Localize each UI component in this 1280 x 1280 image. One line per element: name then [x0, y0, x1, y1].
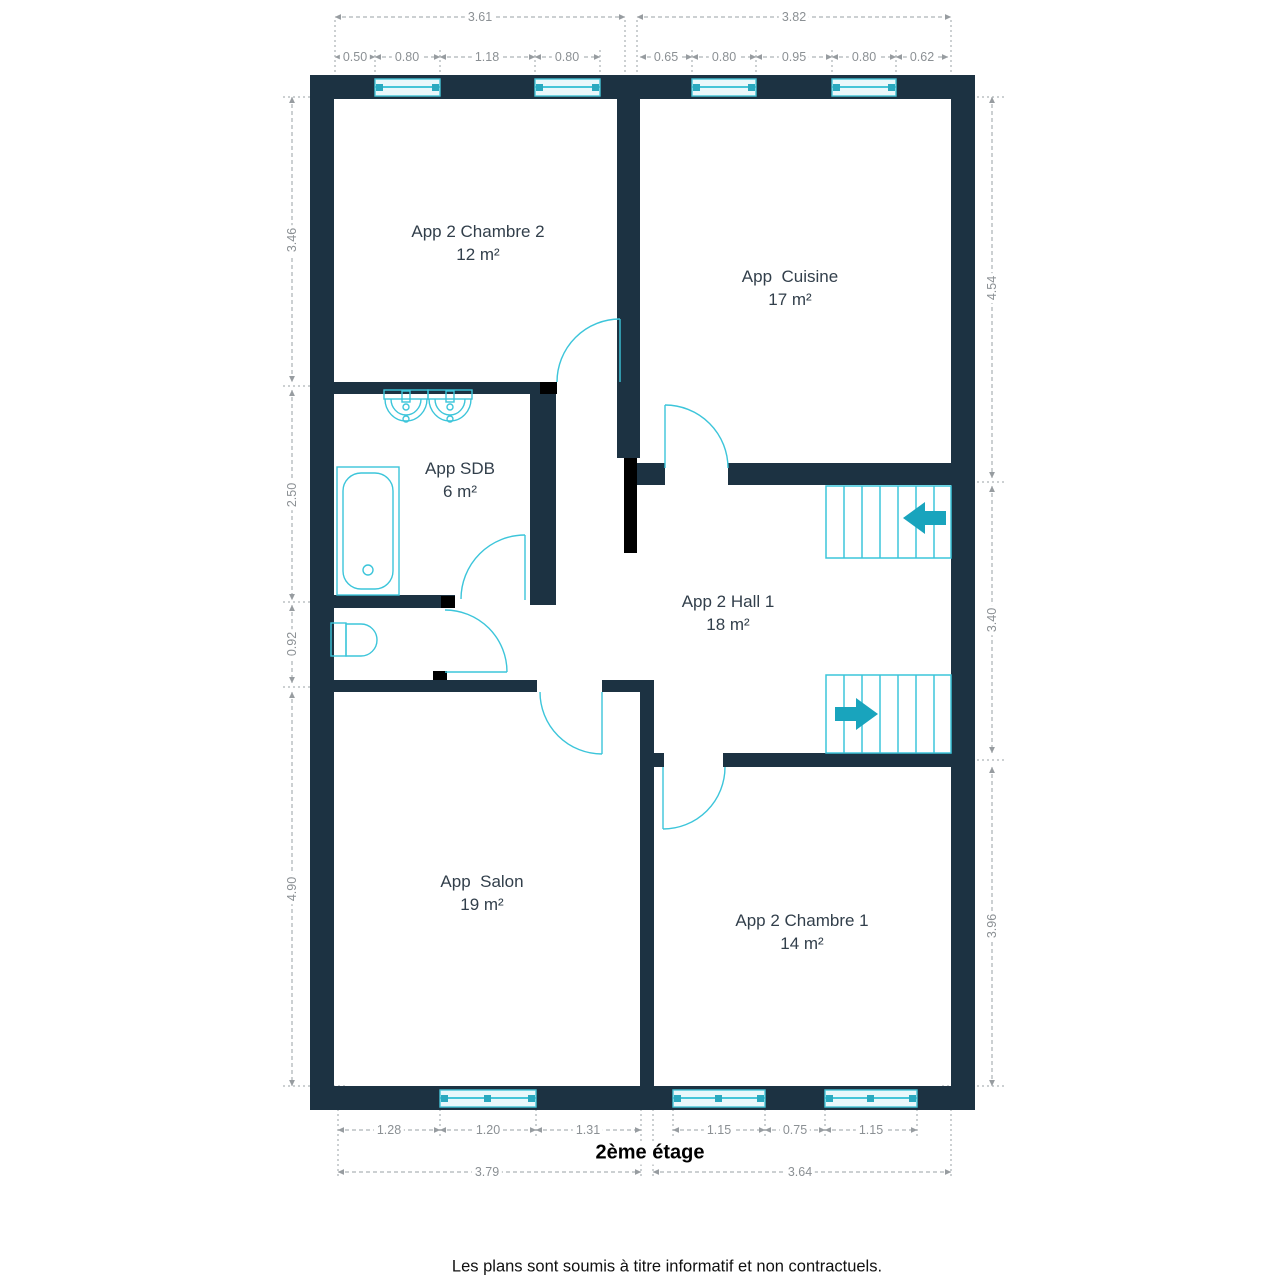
dim-bottom-seg: 0.75	[780, 1123, 810, 1137]
room-area: 6 m²	[425, 480, 495, 503]
room-name: App 2 Hall 1	[682, 590, 775, 613]
dim-bottom-seg: 1.31	[573, 1123, 603, 1137]
floor-title: 2ème étage	[592, 1142, 709, 1165]
walls-layer	[310, 75, 975, 1110]
toilet-icon	[331, 623, 377, 656]
room-label-app2-chambre2: App 2 Chambre 2 12 m²	[411, 220, 544, 266]
dim-top-seg: 0.50	[340, 50, 370, 64]
dim-bottom-seg: 1.28	[374, 1123, 404, 1137]
room-name: App SDB	[425, 457, 495, 480]
dim-right: 3.40	[985, 605, 999, 635]
room-label-app2-hall1: App 2 Hall 1 18 m²	[682, 590, 775, 636]
disclaimer-text: Les plans sont soumis à titre informatif…	[452, 1258, 882, 1277]
dim-left: 4.90	[285, 874, 299, 904]
dim-left: 0.92	[285, 629, 299, 659]
dim-top-seg: 0.80	[849, 50, 879, 64]
floor-plan-drawing	[0, 0, 1280, 1280]
room-label-app-cuisine: App Cuisine 17 m²	[742, 265, 838, 311]
room-label-app2-chambre1: App 2 Chambre 1 14 m²	[735, 909, 868, 955]
room-area: 12 m²	[411, 243, 544, 266]
room-area: 17 m²	[742, 288, 838, 311]
dim-top-seg: 0.95	[779, 50, 809, 64]
dim-top-total-1: 3.61	[465, 10, 495, 24]
dim-bottom-seg: 1.20	[473, 1123, 503, 1137]
room-name: App Salon	[440, 870, 523, 893]
dim-bottom-total-1: 3.79	[472, 1165, 502, 1179]
dim-top-seg: 1.18	[472, 50, 502, 64]
dim-top-total-2: 3.82	[779, 10, 809, 24]
dim-top-seg: 0.80	[392, 50, 422, 64]
room-name: App 2 Chambre 2	[411, 220, 544, 243]
dim-top-seg: 0.62	[907, 50, 937, 64]
floor-plan-page: App 2 Chambre 2 12 m² App Cuisine 17 m² …	[0, 0, 1280, 1280]
room-area: 18 m²	[682, 613, 775, 636]
dim-bottom-seg: 1.15	[704, 1123, 734, 1137]
double-sink-icon	[384, 390, 472, 422]
dim-top-seg: 0.65	[651, 50, 681, 64]
dim-top-seg: 0.80	[552, 50, 582, 64]
room-area: 19 m²	[440, 893, 523, 916]
dim-right: 3.96	[985, 911, 999, 941]
dim-left: 2.50	[285, 480, 299, 510]
dim-bottom-total-2: 3.64	[785, 1165, 815, 1179]
room-area: 14 m²	[735, 932, 868, 955]
doors-layer	[445, 319, 728, 829]
dim-top-seg: 0.80	[709, 50, 739, 64]
room-name: App Cuisine	[742, 265, 838, 288]
dim-bottom-seg: 1.15	[856, 1123, 886, 1137]
dim-right: 4.54	[985, 273, 999, 303]
room-label-app-salon: App Salon 19 m²	[440, 870, 523, 916]
room-label-app-sdb: App SDB 6 m²	[425, 457, 495, 503]
dim-left: 3.46	[285, 225, 299, 255]
room-name: App 2 Chambre 1	[735, 909, 868, 932]
bathtub-icon	[337, 467, 399, 595]
